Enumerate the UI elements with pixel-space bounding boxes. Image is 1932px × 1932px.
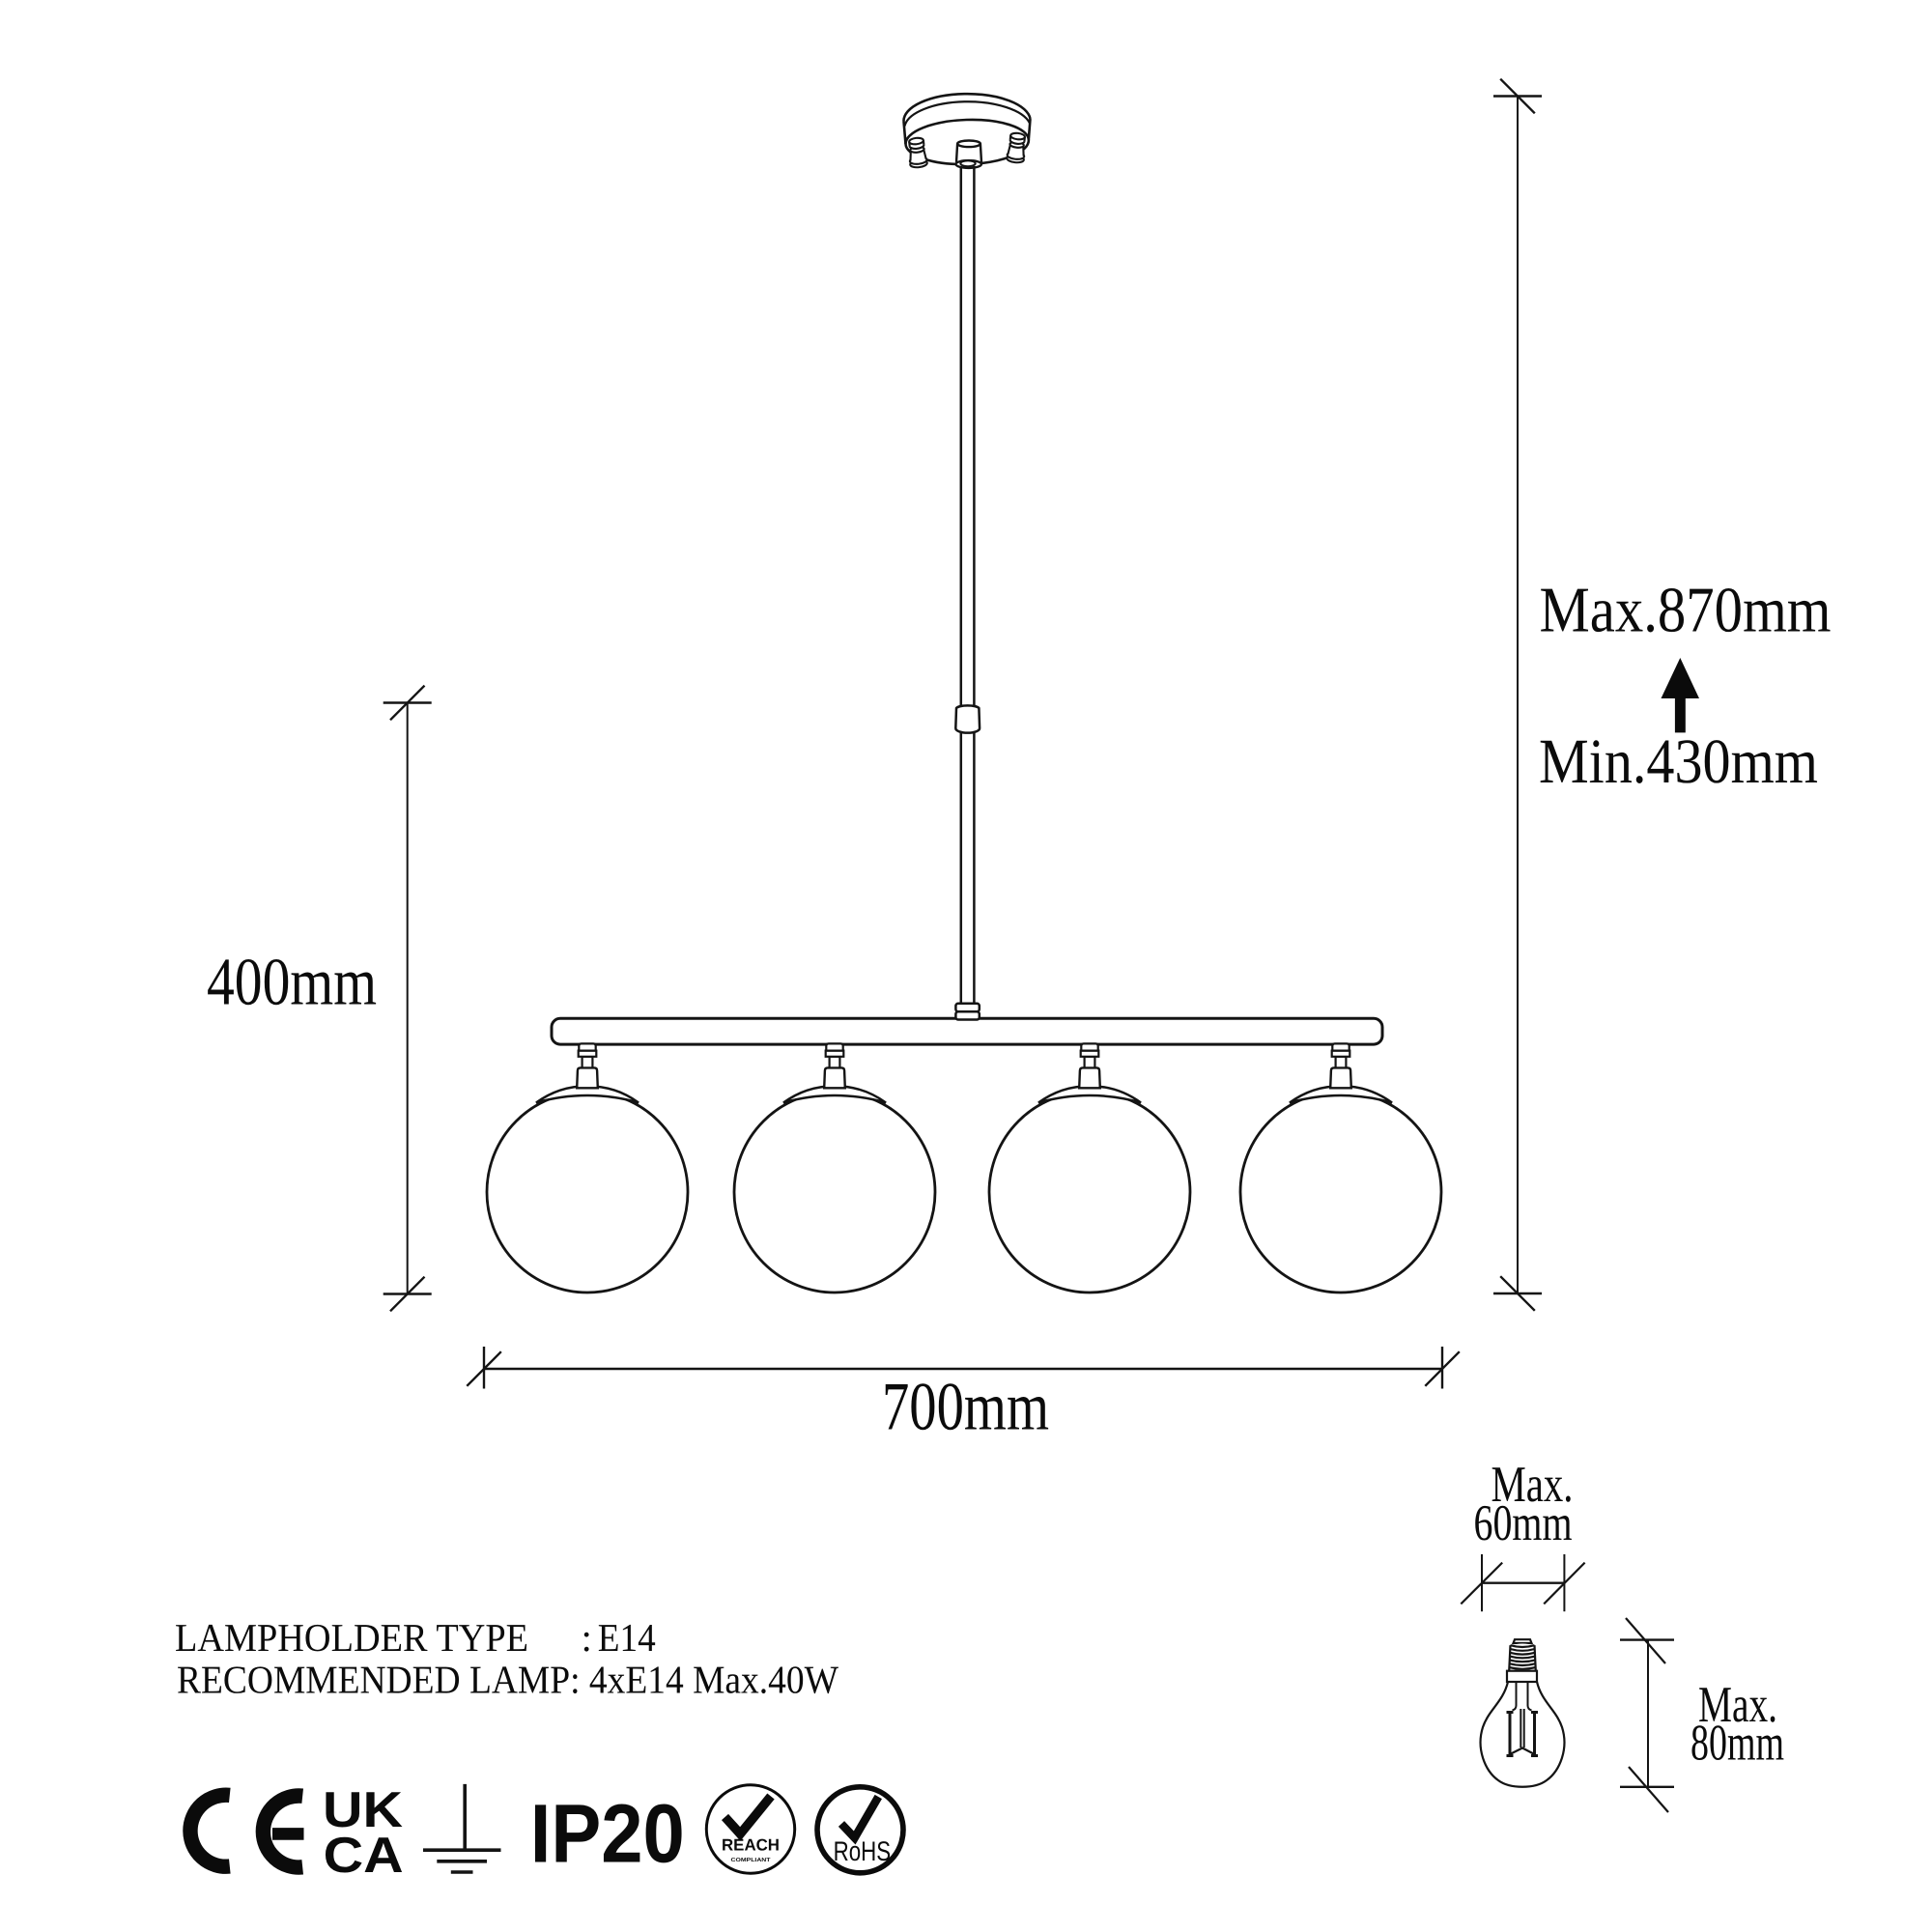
svg-text:Max.870mm: Max.870mm bbox=[1540, 574, 1832, 645]
svg-text:CA: CA bbox=[324, 1828, 404, 1884]
svg-text::: : bbox=[582, 1615, 592, 1660]
svg-text:400mm: 400mm bbox=[207, 946, 377, 1020]
svg-text:COMPLIANT: COMPLIANT bbox=[731, 1858, 772, 1863]
svg-text:80mm: 80mm bbox=[1690, 1716, 1784, 1772]
svg-text:700mm: 700mm bbox=[882, 1370, 1049, 1445]
svg-text:Min.430mm: Min.430mm bbox=[1539, 726, 1818, 797]
svg-text:60mm: 60mm bbox=[1474, 1495, 1573, 1551]
svg-text:LAMPHOLDER TYPE: LAMPHOLDER TYPE bbox=[175, 1615, 528, 1660]
svg-text:RECOMMENDED LAMP: 4xE14 Max.40: RECOMMENDED LAMP: 4xE14 Max.40W bbox=[177, 1658, 838, 1702]
svg-text:E14: E14 bbox=[598, 1615, 656, 1660]
svg-text:IP20: IP20 bbox=[530, 1788, 685, 1881]
svg-text:RoHS: RoHS bbox=[834, 1836, 892, 1867]
svg-text:REACH: REACH bbox=[722, 1836, 780, 1855]
